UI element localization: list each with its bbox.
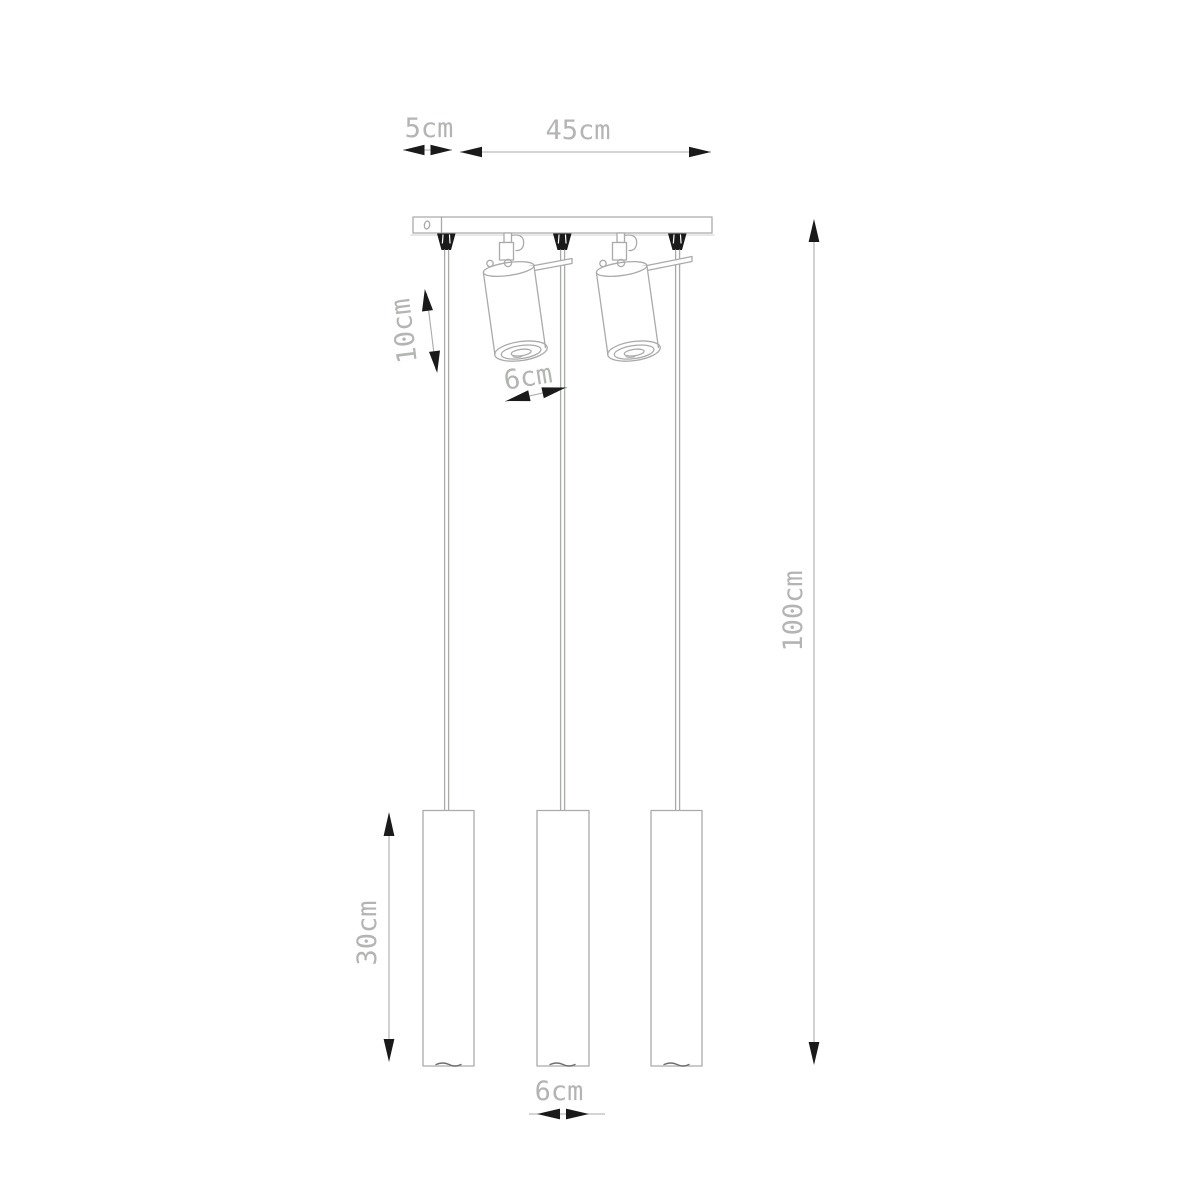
dimension-label-spot-length: 10cm	[385, 297, 424, 365]
spot-arm-1	[529, 259, 572, 272]
arrow-up-icon	[422, 289, 433, 312]
cord-grip-2	[553, 234, 572, 251]
ceiling-canopy-bar	[411, 217, 714, 235]
arrow-right-icon	[566, 1109, 589, 1120]
dimension-spot-diameter: 6cm	[502, 358, 567, 401]
dimension-spot-length: 10cm	[385, 289, 440, 373]
dimension-label-tube-length: 30cm	[352, 900, 383, 965]
cord-grip-1	[437, 234, 456, 251]
cable-1	[445, 250, 449, 811]
dimension-overall-height: 100cm	[778, 219, 819, 1065]
dimension-tube-diameter: 6cm	[529, 1076, 605, 1119]
cable-3	[676, 250, 680, 811]
pendant-tube-2	[537, 811, 589, 1067]
arrow-up-icon	[384, 812, 395, 836]
dimension-tube-length: 30cm	[352, 812, 394, 1062]
lamp-fixture	[411, 217, 714, 1066]
arrow-right-icon	[431, 145, 453, 156]
cord-grip-3	[668, 234, 687, 251]
pendant-lamp-dimension-drawing: 5cm 45cm 10cm 6cm 100cm 30cm	[0, 0, 1200, 1200]
pendant-tube-3	[651, 811, 702, 1067]
pendant-tube-1	[423, 811, 474, 1067]
arrow-left-icon	[403, 145, 425, 156]
arrow-right-icon	[689, 147, 711, 158]
dimension-canopy-side: 5cm	[403, 113, 453, 155]
spotlight-cylinder-2	[595, 259, 661, 364]
spotlight-cylinder-1	[482, 259, 548, 364]
dimension-label-tube-diameter: 6cm	[535, 1076, 584, 1107]
dimension-label-canopy-side: 5cm	[405, 113, 454, 144]
arrow-down-icon	[809, 1042, 820, 1065]
dimension-label-canopy-width: 45cm	[545, 115, 610, 146]
arrow-up-icon	[809, 219, 820, 242]
arrow-down-icon	[384, 1039, 395, 1062]
arrow-left-icon	[537, 1109, 560, 1120]
dimension-canopy-width: 45cm	[460, 115, 711, 157]
arrow-down-icon	[429, 351, 440, 374]
dimension-label-overall-height: 100cm	[778, 570, 809, 651]
spot-arm-2	[642, 257, 692, 272]
cable-2	[561, 250, 565, 811]
arrow-left-icon	[460, 147, 482, 158]
